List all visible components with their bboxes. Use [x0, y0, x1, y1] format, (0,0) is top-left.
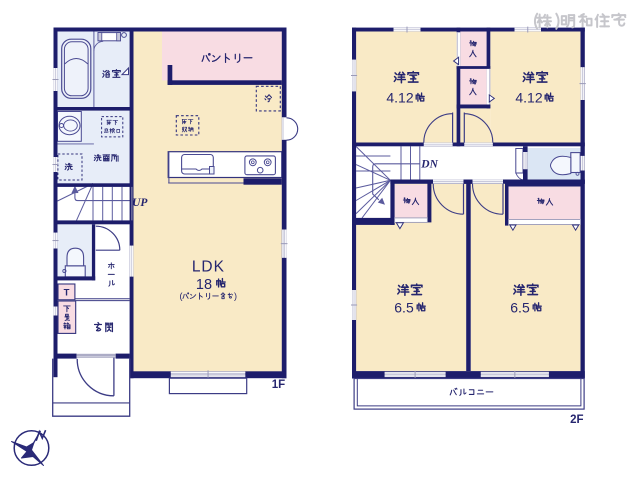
svg-text:4.12: 4.12 — [386, 90, 413, 106]
svg-text:LDK: LDK — [192, 259, 225, 276]
svg-text:(: ( — [180, 291, 183, 301]
svg-text:6.5: 6.5 — [510, 300, 530, 316]
svg-text:T: T — [64, 288, 70, 299]
svg-text:4.12: 4.12 — [515, 90, 542, 106]
svg-text:2F: 2F — [570, 414, 583, 426]
svg-text:DN: DN — [420, 159, 438, 171]
svg-text:6.5: 6.5 — [394, 300, 414, 316]
svg-text:18: 18 — [196, 277, 212, 293]
svg-text:UP: UP — [132, 197, 148, 209]
svg-text:1F: 1F — [272, 379, 285, 391]
svg-text:): ) — [234, 291, 237, 301]
